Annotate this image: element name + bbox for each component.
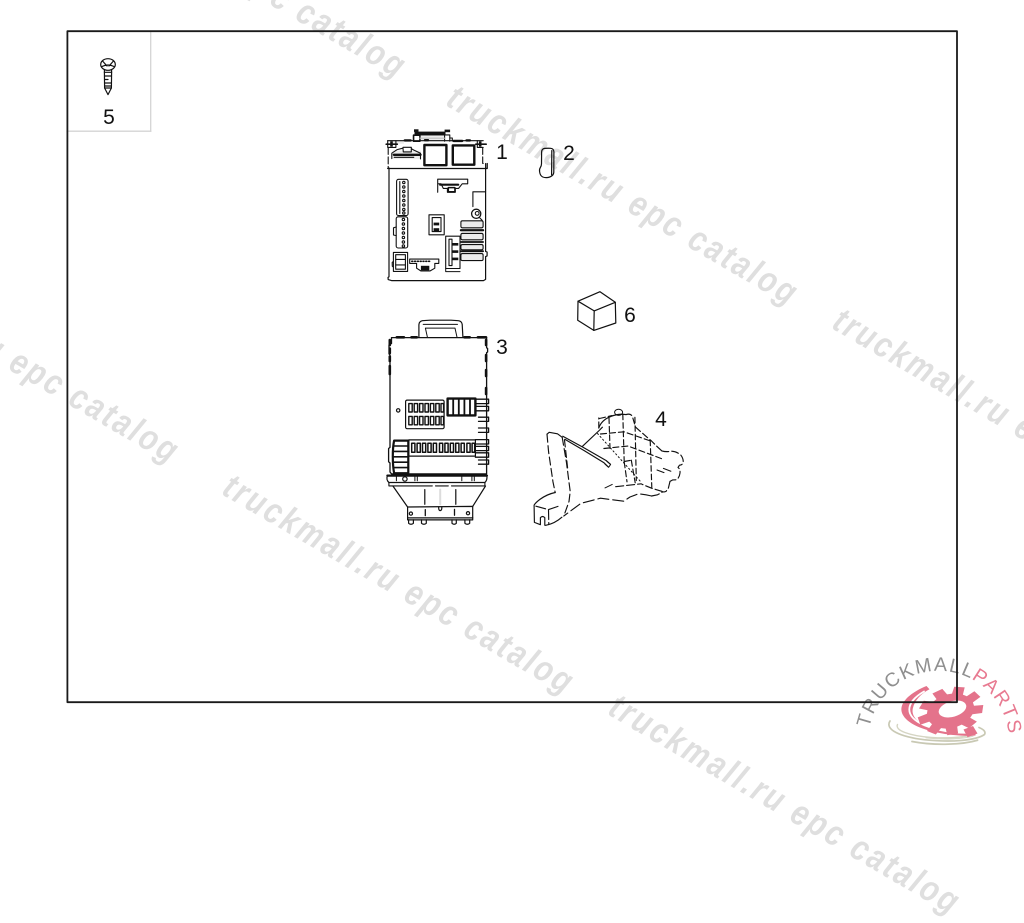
svg-text:6: 6 xyxy=(624,304,636,327)
svg-text:PARTS: PARTS xyxy=(969,664,1024,736)
svg-text:3: 3 xyxy=(496,336,508,359)
svg-text:4: 4 xyxy=(655,408,667,431)
svg-text:1: 1 xyxy=(496,141,508,164)
svg-text:5: 5 xyxy=(103,106,115,129)
svg-text:2: 2 xyxy=(563,142,575,165)
